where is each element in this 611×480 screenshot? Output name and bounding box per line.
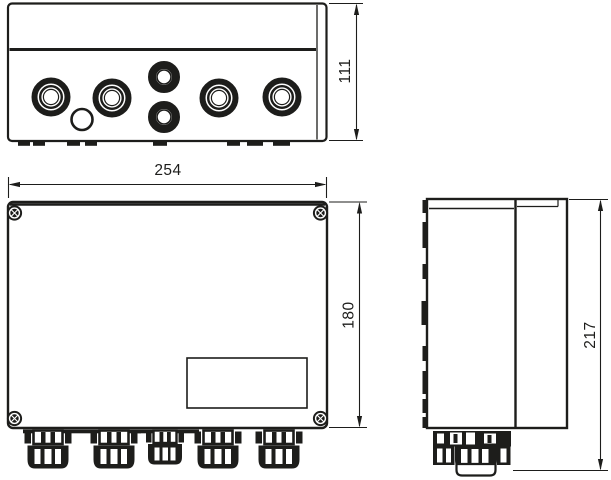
- dimension-label-180: 180: [341, 301, 358, 328]
- cable-gland-5: [256, 431, 303, 469]
- dimension-front-width: 254: [9, 162, 327, 198]
- cable-gland-4: [195, 431, 242, 469]
- arrowhead-left: [9, 182, 21, 187]
- corner-screw-top-right: [313, 205, 328, 220]
- arrowhead-up: [357, 202, 362, 214]
- front-view-cable-glands: [23, 430, 303, 469]
- front-view: 254 180: [7, 162, 367, 469]
- top-view: [8, 4, 327, 146]
- dimension-front-height: 180: [329, 202, 367, 428]
- enclosure-technical-drawing: 111 254: [0, 0, 611, 480]
- top-view-mounting-tabs: [18, 142, 290, 146]
- cable-gland-1: [25, 431, 72, 469]
- dimension-label-217: 217: [582, 321, 599, 348]
- arrowhead-down: [357, 416, 362, 428]
- cable-gland-2: [91, 431, 138, 469]
- dimension-label-111: 111: [337, 58, 354, 83]
- rating-label-field: [187, 358, 307, 408]
- gland-bottom-rim: [457, 464, 496, 476]
- side-view: 217: [422, 199, 609, 476]
- dimension-top-depth: 111: [329, 4, 363, 141]
- corner-screw-bottom-left: [7, 411, 22, 426]
- arrowhead-down: [354, 129, 359, 141]
- corner-screw-bottom-right: [313, 411, 328, 426]
- side-view-mounting-tabs: [422, 200, 429, 428]
- drawing-canvas: 111 254: [0, 0, 611, 480]
- dimension-label-254: 254: [154, 162, 181, 179]
- arrowhead-up: [598, 200, 603, 212]
- arrowhead-up: [354, 4, 359, 16]
- side-view-outline: [427, 199, 567, 428]
- cable-gland-3: [146, 431, 184, 465]
- top-view-outline: [8, 4, 327, 142]
- arrowhead-down: [598, 459, 603, 471]
- side-view-cable-glands: [433, 431, 511, 476]
- arrowhead-right: [315, 182, 327, 187]
- corner-screw-top-left: [7, 205, 22, 220]
